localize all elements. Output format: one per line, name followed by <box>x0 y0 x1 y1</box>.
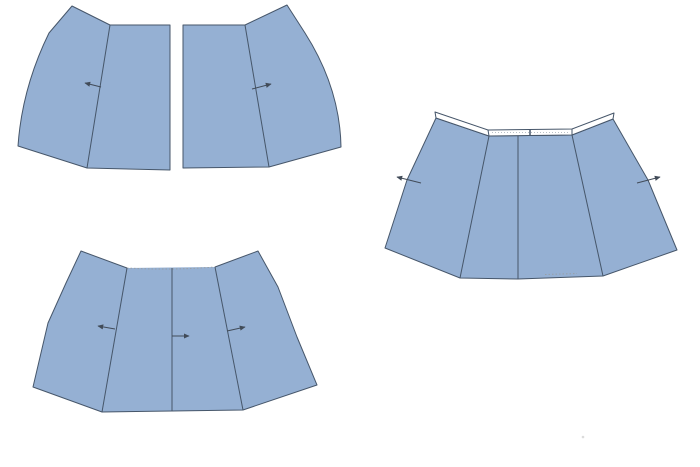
panels-with-waistband <box>385 112 677 279</box>
panels-separated <box>18 5 341 170</box>
skirt-body <box>385 118 677 279</box>
pattern-diagram-canvas <box>0 0 700 467</box>
faint-artifact-dot <box>582 436 585 439</box>
joined-piece-fill <box>33 251 317 412</box>
left-panel <box>18 6 170 170</box>
panels-joined <box>33 251 317 412</box>
sewing-pattern-diagram <box>0 0 700 467</box>
